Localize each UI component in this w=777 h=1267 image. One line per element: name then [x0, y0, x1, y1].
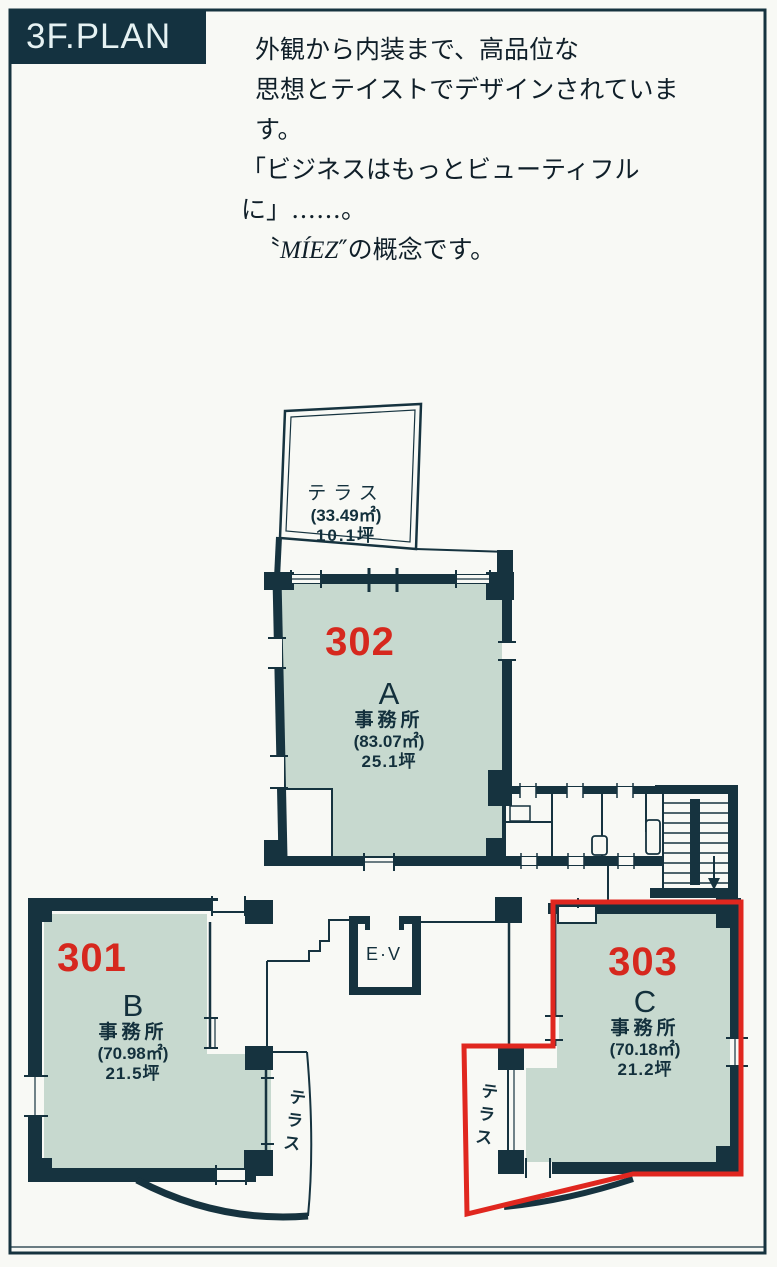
elevator-label: E·V	[366, 944, 402, 965]
roof-terrace-label: テラス (33.49㎡) 10.1坪	[307, 482, 385, 546]
unit-301-area: (70.98㎡)	[98, 1044, 169, 1064]
roof-terrace-tsubo: 10.1坪	[307, 526, 385, 546]
title-box: 3F.PLAN	[10, 10, 206, 64]
unit-303-room	[464, 898, 748, 1214]
brand-quote-open: 〝	[255, 235, 280, 264]
unit-303-number: 303	[608, 940, 678, 985]
unit-303-area: (70.18㎡)	[610, 1040, 681, 1060]
unit-302-use: 事務所	[354, 709, 425, 732]
service-rooms	[488, 770, 663, 902]
unit-301-number: 301	[57, 936, 127, 981]
unit-302-letter: A	[354, 678, 425, 709]
unit-303-label: C 事務所 (70.18㎡) 21.2坪	[610, 986, 681, 1079]
unit-302-area: (83.07㎡)	[354, 732, 425, 752]
brand-name: MÍEZ	[280, 237, 338, 264]
unit-303-letter: C	[610, 986, 681, 1017]
intro-line-2: 思想とテイストでデザインされています。	[241, 70, 711, 150]
intro-line-1: 外観から内装まで、高品位な	[241, 30, 711, 70]
unit-303-use: 事務所	[610, 1017, 681, 1040]
roof-terrace-name: テラス	[307, 482, 385, 505]
intro-text: 外観から内装まで、高品位な 思想とテイストでデザインされています。 「ビジネスは…	[241, 30, 711, 271]
page-title: 3F.PLAN	[26, 17, 171, 57]
unit-301-tsubo: 21.5坪	[98, 1064, 169, 1083]
roof-terrace-area: (33.49㎡)	[307, 505, 385, 526]
unit-301-label: B 事務所 (70.98㎡) 21.5坪	[98, 990, 169, 1083]
unit-302-number: 302	[325, 620, 395, 665]
unit-303-tsubo: 21.2坪	[610, 1060, 681, 1079]
unit-302-tsubo: 25.1坪	[354, 752, 425, 771]
unit-302-label: A 事務所 (83.07㎡) 25.1坪	[354, 678, 425, 771]
staircase	[650, 785, 738, 905]
unit-301-letter: B	[98, 990, 169, 1021]
unit-301-use: 事務所	[98, 1021, 169, 1044]
intro-line-3: 「ビジネスはもっとビューティフルに」……。	[241, 150, 711, 230]
floor-plan-page: 3F.PLAN 外観から内装まで、高品位な 思想とテイストでデザインされています…	[0, 0, 777, 1267]
brand-line-rest: ″の概念です。	[338, 235, 495, 264]
intro-line-4: 〝MÍEZ″の概念です。	[241, 230, 711, 271]
